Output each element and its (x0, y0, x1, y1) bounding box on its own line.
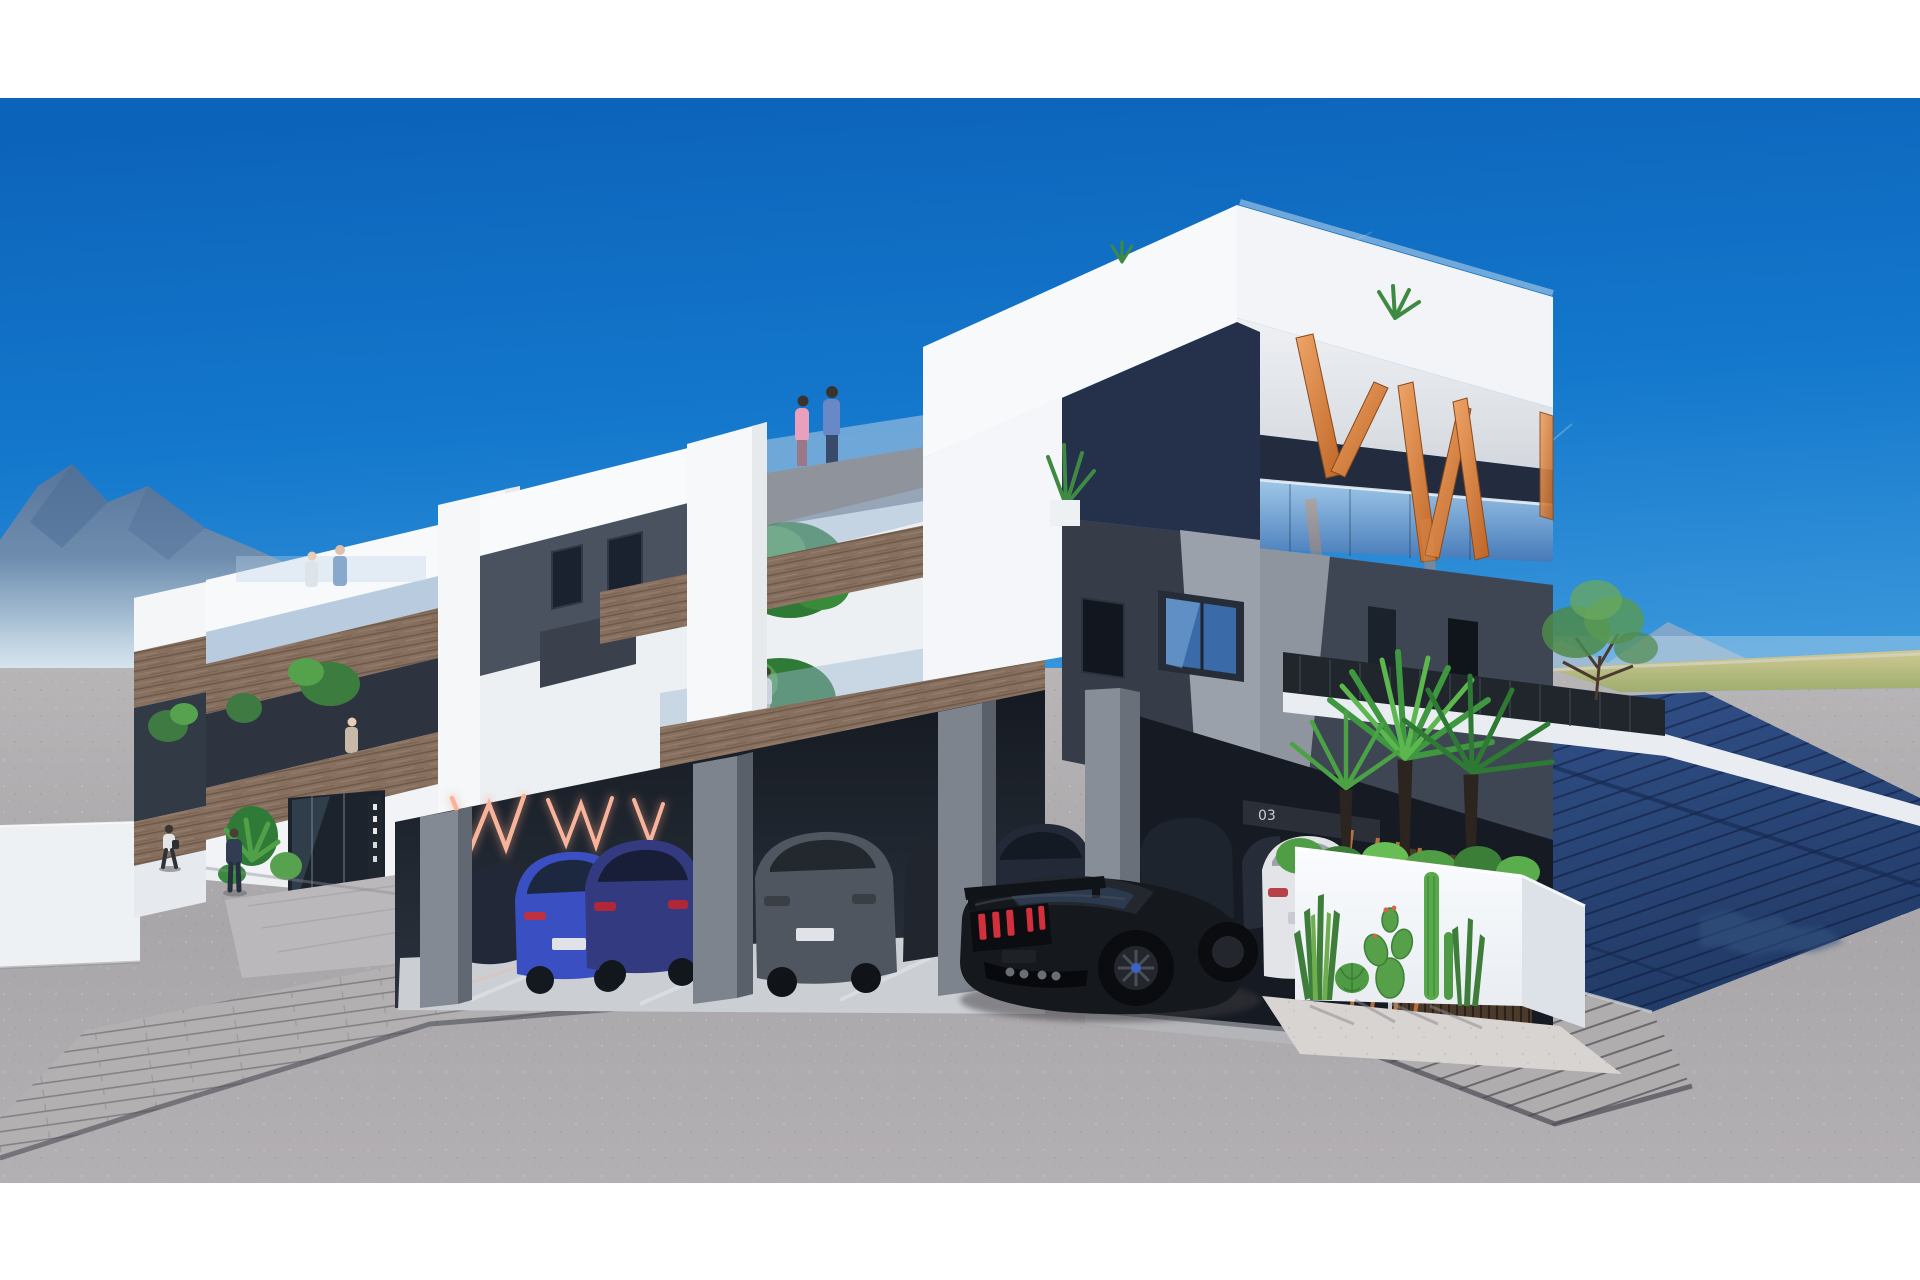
garage-number: 03 (1258, 808, 1276, 824)
letterbox-top (0, 0, 1920, 98)
render-image: 03 (0, 0, 1920, 1280)
boundary-wall-left (0, 822, 140, 968)
corner-pier (687, 422, 767, 722)
car-plate (1002, 950, 1036, 963)
carport-pillar (420, 806, 472, 1008)
parked-car-purple (585, 840, 703, 988)
letterbox-bottom (0, 1183, 1920, 1280)
carport-pillar (693, 752, 753, 1004)
parked-car-gray (755, 832, 897, 997)
window-framed (1158, 590, 1244, 682)
car-wheel-rear (1098, 930, 1174, 1006)
car-wheel-front (1198, 922, 1258, 982)
window (1082, 598, 1124, 678)
scene-svg: 03 (0, 0, 1920, 1280)
entrance-vertical-sign (368, 796, 382, 888)
